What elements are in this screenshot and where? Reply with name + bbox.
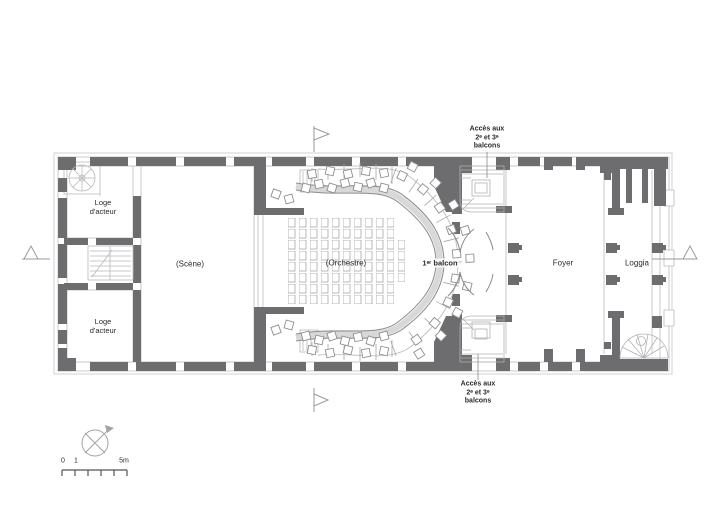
scale-label-0: 0: [61, 457, 65, 466]
label-loge-top: Loge d'acteur: [90, 198, 116, 216]
scale-label-1: 1: [74, 457, 78, 466]
label-loggia: Loggia: [625, 259, 649, 268]
scale-label-5m: 5m: [119, 457, 129, 466]
floor-plan-drawing: [0, 0, 728, 515]
label-acces-bottom: Accès aux 2ᵉ et 3ᵉ balcons: [461, 380, 496, 406]
scale-bar: [62, 470, 127, 476]
label-loge-bottom: Loge d'acteur: [90, 317, 116, 335]
label-scene: (Scène): [176, 260, 204, 269]
straight-stair: [88, 246, 133, 280]
floor-plan-canvas: Loge d'acteur Loge d'acteur (Scène) (Orc…: [0, 0, 728, 515]
label-orchestre: (Orchestre): [326, 259, 366, 268]
flag-marker-top-icon: [314, 126, 329, 152]
label-foyer: Foyer: [553, 259, 573, 268]
spiral-stair: [69, 165, 95, 191]
access-leader-lines: [478, 152, 487, 380]
label-premier-balcon: 1ᵉʳ balcon: [421, 259, 458, 268]
section-marker-left-icon: [22, 246, 50, 259]
flag-marker-bottom-icon: [314, 388, 328, 412]
north-arrow-icon: [82, 425, 114, 456]
label-acces-top: Accès aux 2ᵉ et 3ᵉ balcons: [470, 125, 505, 151]
